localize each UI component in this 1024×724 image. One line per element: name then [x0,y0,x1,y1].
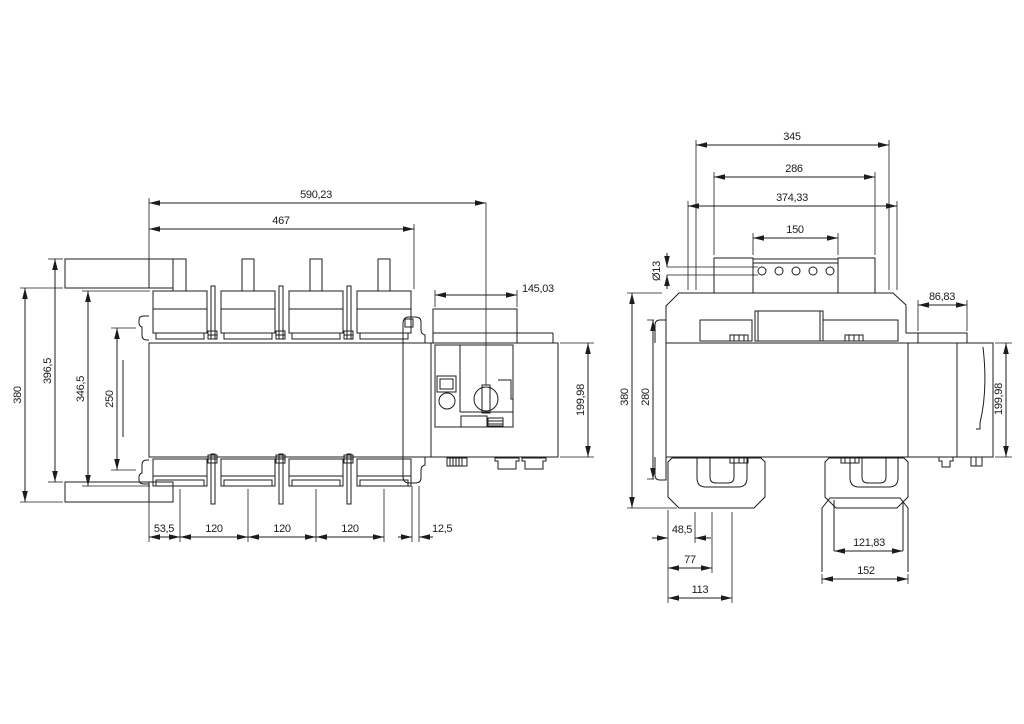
front-body-outline [65,259,558,504]
handle-lever [482,385,490,413]
terminal-tab [242,259,254,291]
dim-label-foot-offset-c: 113 [692,584,709,596]
dimension-drawing-canvas: 590,23 467 145,03 199,98 380 396,5 [0,0,1024,724]
dim-label-first-pole-offset: 53,5 [154,523,174,535]
terminal-tab [173,259,186,291]
dim-label-overall-width: 590,23 [300,189,332,201]
motor-drive-unit [433,309,553,469]
phase-barrier [208,286,217,339]
dim-label-bridge-width: 286 [785,163,803,175]
side-view: 345 286 374,33 150 Ø13 [619,131,1012,603]
bottom-connection-bar [65,482,173,502]
front-view: 590,23 467 145,03 199,98 380 396,5 [12,189,594,542]
dim-label-pole-pitch: 120 [273,523,291,535]
dim-label-pole-pitch: 120 [205,523,223,535]
technical-drawing-page: 590,23 467 145,03 199,98 380 396,5 [0,0,1024,724]
drive-faceplate [435,345,513,427]
dim-label-pole-pitch: 120 [341,523,359,535]
din-clip [939,457,953,467]
pushbutton [439,393,455,409]
dim-label-terminal-height: 346,5 [75,376,87,402]
side-flange [655,320,666,343]
dim-label-mount-spacing: 250 [104,390,116,408]
terminal-block [221,291,275,339]
dim-label-busbar-width: 150 [786,224,804,236]
phase-barrier [276,286,285,339]
drive-foot [495,458,519,469]
dim-label-base-inner-width: 121,83 [853,537,885,549]
terminal-tower [714,258,753,293]
dim-label-drive-depth: 86,83 [929,291,955,303]
top-housing [666,293,918,343]
dim-label-body-depth: 199,98 [575,384,587,416]
center-block [755,311,823,341]
dim-label-terminal-span: 467 [272,215,290,227]
mounting-foot [668,458,765,508]
dim-label-top-width: 374,33 [776,192,808,204]
side-dimensions: 345 286 374,33 150 Ø13 [619,131,1012,603]
terminal-block [221,459,275,486]
handle-profile [976,347,985,429]
phase-barrier [344,454,353,504]
dim-label-overall-height-side: 380 [619,388,631,406]
mounting-ear [139,460,149,484]
phase-barrier [208,454,217,504]
drive-foot [522,458,546,469]
terminal-block [289,291,343,339]
label-plate [461,416,487,427]
dim-label-foot-offset-b: 77 [684,554,696,566]
rotary-handle-knob [474,387,498,411]
dim-label-body-depth-side: 199,98 [993,383,1005,415]
terminal-tab [310,259,322,291]
terminal-clamp [730,335,748,341]
dim-label-edge-offset: 12,5 [432,523,452,535]
drive-unit-side [908,343,993,457]
dim-label-plate-height: 380 [12,386,24,404]
drive-platform [433,309,517,343]
dim-label-overall-height: 396,5 [42,358,54,384]
front-dimensions: 590,23 467 145,03 199,98 380 396,5 [12,189,594,542]
terminal-tab [378,259,390,291]
phase-barrier [344,286,353,339]
mounting-ear [403,457,425,483]
aux-connector [447,458,467,466]
base-shroud [822,498,908,572]
busbar-holes [758,267,834,275]
top-connection-bar [65,259,173,288]
dim-label-bracket-span: 345 [783,131,801,143]
switch-body-side [666,343,908,457]
dim-label-foot-offset-a: 48,5 [672,524,692,536]
housing-step [918,333,967,343]
side-flange [655,457,666,480]
dim-label-flange-span: 280 [640,388,652,406]
mounting-foot [825,458,908,508]
tower-base [823,320,898,341]
dim-label-base-width: 152 [857,565,875,577]
terminal-tower [838,258,875,293]
terminal-block [153,291,207,339]
dim-label-hole-diameter: Ø13 [651,261,663,281]
mounting-ear [139,316,149,340]
terminal-clamp [845,335,863,341]
switch-body [149,343,558,457]
phase-barrier [276,454,285,504]
terminal-block [289,459,343,486]
dim-label-drive-width: 145,03 [522,283,554,295]
